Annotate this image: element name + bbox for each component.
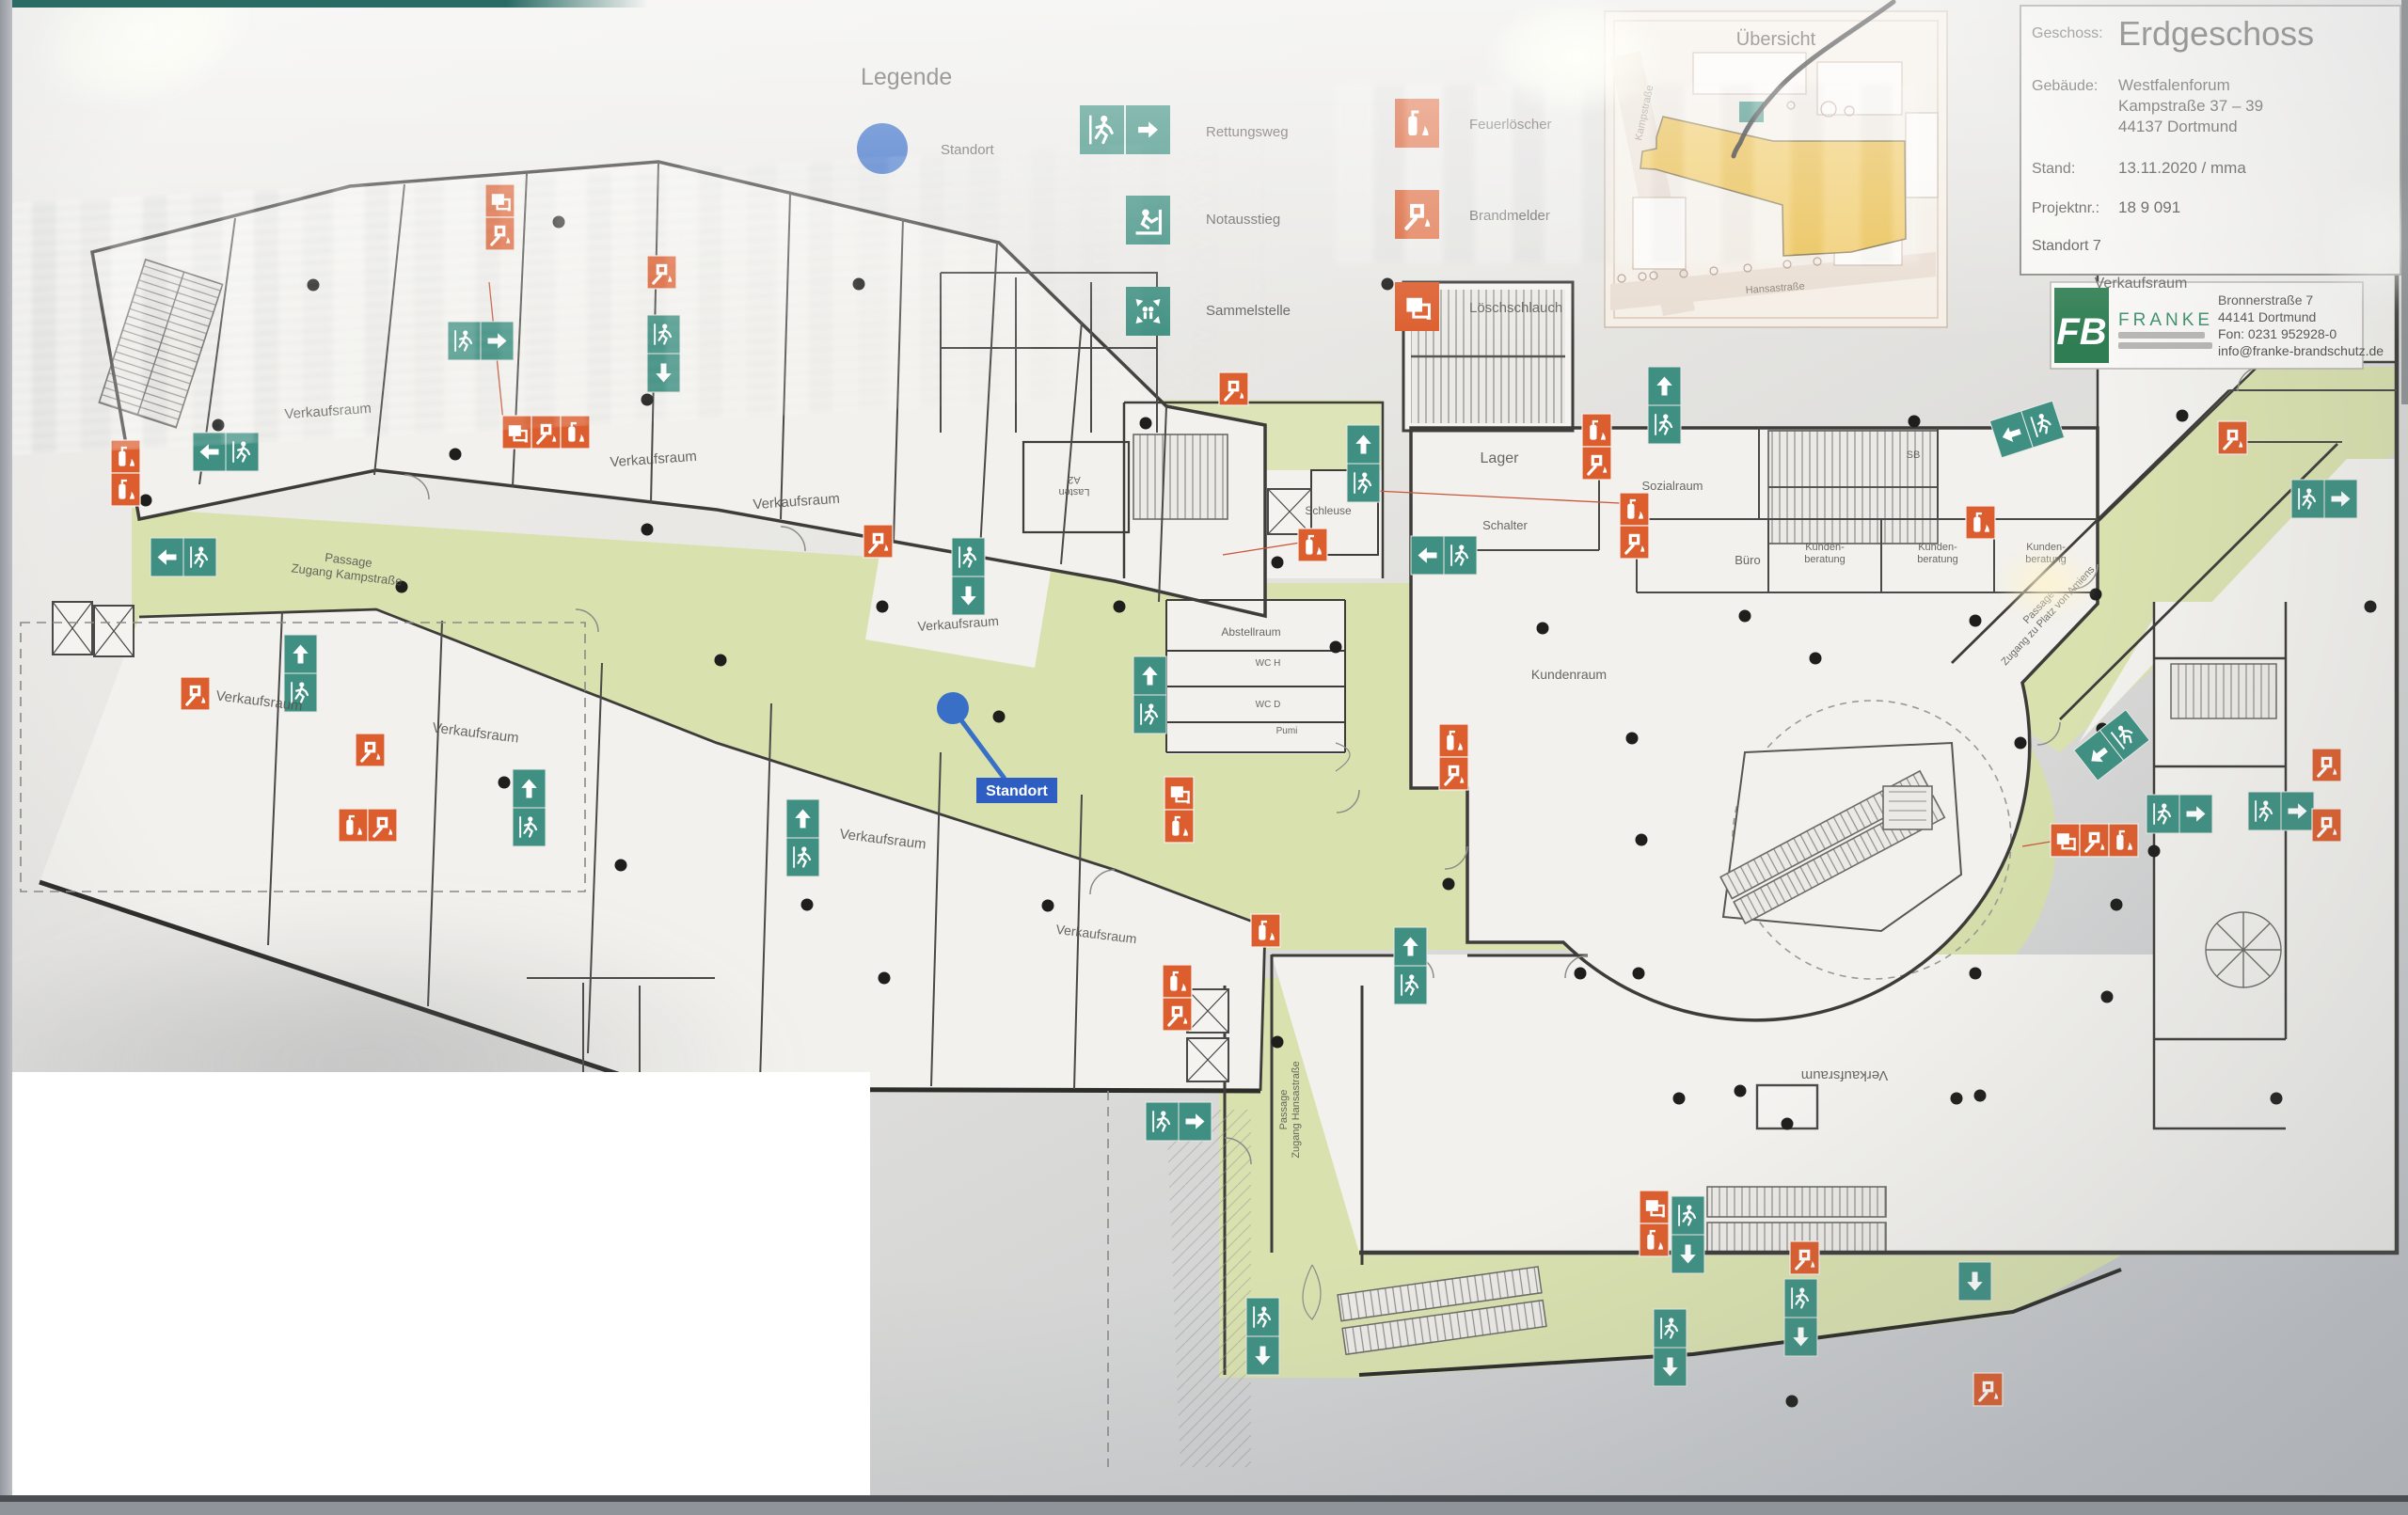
column-dot xyxy=(2090,589,2102,601)
column-dot xyxy=(1330,641,1342,654)
room-label: Kundenraum xyxy=(1531,667,1607,682)
column-dot xyxy=(308,279,320,292)
exit-sign xyxy=(2248,792,2314,830)
column-dot xyxy=(1970,615,1982,627)
stand-label: Stand: xyxy=(2032,161,2075,177)
column-dot xyxy=(1786,1396,1798,1408)
info-box: Geschoss: Erdgeschoss Gebäude: Westfalen… xyxy=(2020,6,2400,275)
fire-safety-icon xyxy=(1966,506,1995,539)
column-dot xyxy=(1633,968,1645,980)
room-label: Kunden-beratung xyxy=(1804,542,1845,565)
column-dot xyxy=(1970,968,1982,980)
fire-safety-icon xyxy=(1973,1373,2003,1406)
column-dot xyxy=(1140,418,1152,430)
exit-sign xyxy=(2291,480,2357,518)
column-dot xyxy=(1951,1093,1963,1105)
column-dot xyxy=(1626,733,1639,745)
geschoss-label: Geschoss: xyxy=(2032,25,2103,41)
column-dot xyxy=(2015,737,2027,750)
exit-sign xyxy=(1394,927,1427,1004)
frame-right-edge xyxy=(2401,0,2408,404)
frame-top-edge xyxy=(0,0,649,8)
room-label: Schalter xyxy=(1482,518,1528,532)
exit-sign xyxy=(448,322,514,360)
column-dot xyxy=(1114,601,1126,613)
frame-bottom-edge xyxy=(0,1495,2408,1515)
room-label: SB xyxy=(1907,450,1921,461)
fire-safety-icon xyxy=(2312,749,2341,781)
column-dot xyxy=(1042,900,1054,912)
franke-adresse2: 44141 Dortmund xyxy=(2218,309,2316,324)
column-dot xyxy=(2148,845,2161,858)
fire-safety-icon xyxy=(1219,372,1248,405)
exit-sign xyxy=(1784,1279,1817,1356)
fire-safety-icon xyxy=(111,440,140,506)
room-label: Kunden-beratung xyxy=(1917,542,1957,565)
column-dot xyxy=(1636,834,1648,846)
exit-sign xyxy=(1146,1102,1212,1141)
exit-sign xyxy=(1648,367,1681,444)
franke-subtext-illegible xyxy=(2118,342,2212,349)
room-label: Lager xyxy=(1481,450,1520,466)
column-dot xyxy=(1272,557,1284,569)
standort-legend-icon xyxy=(857,123,908,174)
legend-brandmelder-label: Brandmelder xyxy=(1469,208,1550,224)
exit-sign xyxy=(1671,1196,1704,1273)
frame-left-edge xyxy=(0,0,12,1515)
legend-sammelstelle-label: Sammelstelle xyxy=(1206,303,1291,319)
exit-sign xyxy=(513,769,546,846)
fire-safety-icon xyxy=(181,677,210,710)
franke-logo-letters: FB xyxy=(2056,311,2106,353)
room-label: Büro xyxy=(1735,553,1760,567)
gebaeude-label: Gebäude: xyxy=(2032,78,2098,94)
fire-safety-icon xyxy=(1790,1241,1819,1274)
column-dot xyxy=(140,495,152,507)
column-dot xyxy=(993,711,1006,723)
fire-safety-icon xyxy=(1164,777,1194,843)
column-dot xyxy=(642,394,654,406)
legend-standort-label: Standort xyxy=(941,142,995,158)
column-dot xyxy=(1537,623,1549,635)
fire-safety-icon xyxy=(1640,1191,1669,1256)
column-dot xyxy=(450,449,462,461)
column-dot xyxy=(2271,1093,2283,1105)
room-label: Abstellraum xyxy=(1221,625,1280,639)
exit-sign xyxy=(1133,656,1166,734)
column-dot xyxy=(615,860,627,872)
fire-safety-icon xyxy=(1298,529,1327,561)
room-label: Schleuse xyxy=(1305,504,1352,517)
franke-subtext-illegible xyxy=(2118,332,2205,339)
fire-safety-icon xyxy=(2218,421,2247,454)
spiral-stair xyxy=(2206,912,2281,987)
fire-safety-icon xyxy=(1251,914,1280,947)
column-dot xyxy=(2365,601,2377,613)
notausstieg-icon xyxy=(1126,196,1170,245)
exit-sign xyxy=(150,538,216,576)
gebaeude-name: Westfalenforum xyxy=(2118,76,2230,94)
fire-safety-icon xyxy=(2312,809,2341,842)
exit-sign xyxy=(786,799,819,876)
column-dot xyxy=(553,216,565,229)
gebaeude-strasse: Kampstraße 37 – 39 xyxy=(2118,97,2263,115)
exit-sign xyxy=(952,538,985,615)
hatched-area xyxy=(1166,1110,1251,1467)
legend-feuerloescher-label: Feuerlöscher xyxy=(1469,117,1552,133)
uebersicht-title: Übersicht xyxy=(1736,29,1816,50)
gebaeude-ort: 44137 Dortmund xyxy=(2118,118,2238,135)
column-dot xyxy=(1443,878,1455,891)
franke-block: FB FRANKE Bronnerstraße 7 44141 Dortmund… xyxy=(2051,282,2384,369)
room-label: WC H xyxy=(1256,658,1281,669)
column-dot xyxy=(642,524,654,536)
column-dot xyxy=(1909,416,1921,428)
fire-safety-icon xyxy=(1163,965,1192,1031)
exit-sign xyxy=(1246,1298,1279,1375)
column-dot xyxy=(1974,1090,1987,1102)
standort-dot xyxy=(937,692,969,724)
column-dot xyxy=(2177,410,2189,422)
column-dot xyxy=(879,972,891,985)
fire-safety-icon xyxy=(1439,724,1468,790)
column-dot xyxy=(801,899,814,911)
column-dot xyxy=(877,601,889,613)
fire-safety-icon xyxy=(1620,493,1649,559)
fire-safety-icon xyxy=(1582,414,1611,480)
sammelstelle-icon xyxy=(1126,287,1170,336)
projekt-value: 18 9 091 xyxy=(2118,198,2180,216)
column-dot xyxy=(499,777,511,789)
legend-notausstieg-label: Notausstieg xyxy=(1206,212,1280,228)
column-dot xyxy=(2111,899,2123,911)
legend-loeschschlauch-label: Löschschlauch xyxy=(1469,300,1562,316)
exit-sign xyxy=(1347,425,1380,502)
stand-value: 13.11.2020 / mma xyxy=(2118,159,2246,177)
room-label: Verkaufsraum xyxy=(2095,276,2188,292)
column-dot xyxy=(853,278,865,291)
column-dot xyxy=(1810,653,1822,665)
fire-safety-icon xyxy=(647,256,676,289)
exit-sign xyxy=(1654,1309,1687,1386)
brandmelder-icon xyxy=(1395,190,1439,239)
redaction-rectangle xyxy=(11,1072,870,1502)
column-dot xyxy=(1739,610,1751,623)
projekt-label: Projektnr.: xyxy=(2032,200,2099,216)
exit-sign xyxy=(647,315,680,392)
room-label: Sozialraum xyxy=(1641,479,1703,493)
room-label: WC D xyxy=(1256,700,1281,710)
exit-sign xyxy=(1411,536,1477,575)
franke-name: FRANKE xyxy=(2118,310,2213,330)
standort-value: Standort 7 xyxy=(2032,238,2101,254)
exit-sign xyxy=(1958,1262,1991,1301)
loeschschlauch-icon xyxy=(1395,282,1439,331)
feuerloescher-icon xyxy=(1395,99,1439,148)
fire-safety-icon xyxy=(339,809,397,842)
franke-adresse4: info@franke-brandschutz.de xyxy=(2218,343,2384,358)
uebersicht-inset: Übersicht Kampstraße Hansastraße xyxy=(1605,11,1947,327)
legend-title: Legende xyxy=(861,64,952,90)
column-dot xyxy=(213,419,225,432)
legend-rettungsweg-label: Rettungsweg xyxy=(1206,124,1289,140)
fire-safety-icon xyxy=(485,184,515,250)
column-dot xyxy=(1272,1036,1284,1049)
fire-safety-icon xyxy=(2051,824,2138,857)
fire-safety-icon xyxy=(356,734,385,766)
geschoss-value: Erdgeschoss xyxy=(2118,14,2314,53)
exit-sign xyxy=(2147,795,2212,833)
fire-safety-icon xyxy=(863,525,893,558)
room-label: Pumi xyxy=(1276,726,1298,736)
room-label: Verkaufsraum xyxy=(1801,1067,1889,1083)
exit-sign xyxy=(193,433,259,471)
franke-adresse3: Fon: 0231 952928-0 xyxy=(2218,326,2337,341)
column-dot xyxy=(715,655,727,667)
column-dot xyxy=(1735,1085,1747,1097)
column-dot xyxy=(1673,1093,1686,1105)
fire-safety-icon xyxy=(502,416,590,449)
column-dot xyxy=(1575,968,1587,980)
photo-of-escape-plan: Standort Legende Standort Rettungsweg No… xyxy=(0,0,2408,1515)
franke-adresse1: Bronnerstraße 7 xyxy=(2218,292,2313,308)
standort-label: Standort xyxy=(986,783,1048,799)
column-dot xyxy=(1382,278,1394,291)
column-dot xyxy=(1782,1118,1794,1130)
column-dot xyxy=(2101,991,2114,1003)
room-label: Kunden-beratung xyxy=(2025,542,2066,565)
